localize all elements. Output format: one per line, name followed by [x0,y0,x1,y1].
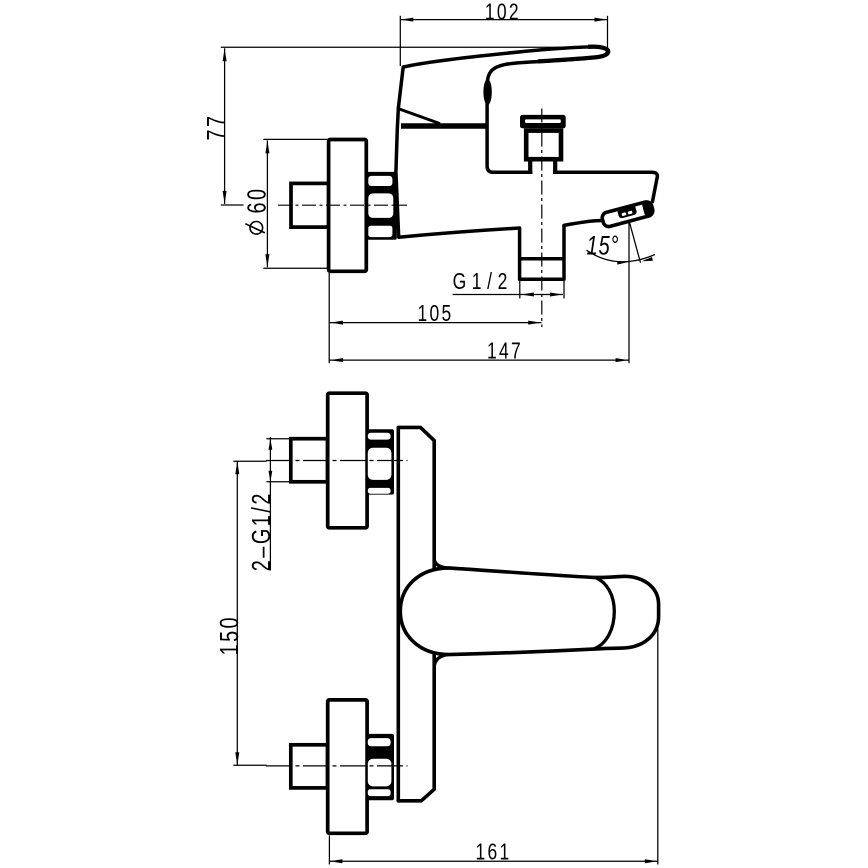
svg-text:G1/2: G1/2 [453,270,513,295]
svg-text:77: 77 [202,114,231,141]
svg-text:105: 105 [418,302,454,327]
svg-text:15°: 15° [587,231,620,260]
svg-text:2–G1/2: 2–G1/2 [246,491,275,571]
svg-text:60: 60 [242,186,271,213]
svg-text:161: 161 [476,840,512,865]
svg-text:150: 150 [215,615,244,655]
svg-text:147: 147 [487,339,523,364]
svg-text:102: 102 [485,0,521,25]
